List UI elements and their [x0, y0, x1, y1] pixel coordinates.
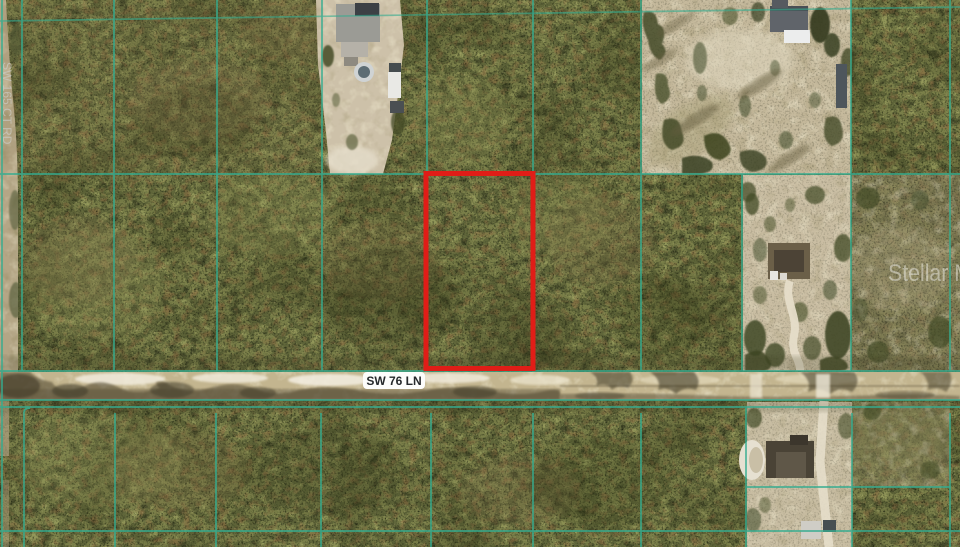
svg-text:SW 165 CT RD: SW 165 CT RD: [0, 62, 14, 145]
svg-text:SW 76 LN: SW 76 LN: [366, 374, 421, 388]
svg-text:Stellar M: Stellar M: [888, 260, 960, 287]
